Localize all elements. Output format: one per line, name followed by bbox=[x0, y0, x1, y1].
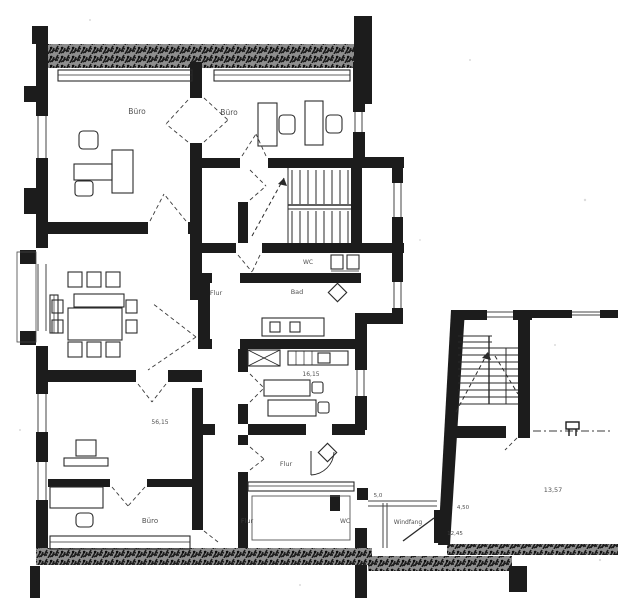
top-wall-band bbox=[46, 44, 362, 68]
label-wc-upper: WC bbox=[303, 259, 313, 266]
bottom-wall-band-main bbox=[36, 548, 372, 565]
furniture-conference-room bbox=[50, 272, 137, 357]
wc-fixture bbox=[331, 255, 343, 269]
label-wc-entrance: WC bbox=[340, 518, 350, 525]
bottom-wall-stub-left bbox=[30, 566, 40, 598]
desk bbox=[112, 150, 133, 193]
conference-table bbox=[68, 308, 122, 340]
radiator bbox=[50, 536, 190, 549]
label-vestibule: Windfang bbox=[394, 519, 423, 526]
label-annex-area: 13,57 bbox=[544, 486, 563, 494]
basin-counter bbox=[262, 318, 324, 336]
column-symbol bbox=[566, 422, 579, 436]
furniture-office-bottom-left bbox=[50, 440, 190, 549]
desk bbox=[268, 400, 316, 416]
bottom-right-pier bbox=[509, 566, 527, 592]
left-pilaster-1 bbox=[24, 86, 36, 102]
bottom-wall-stub-center bbox=[355, 565, 367, 598]
main-staircase bbox=[252, 168, 351, 243]
desk bbox=[264, 380, 310, 396]
label-hall-lower: Flur bbox=[280, 460, 293, 468]
desk bbox=[258, 103, 277, 146]
bay-window-outline bbox=[17, 252, 36, 342]
label-office-bottom-left: Büro bbox=[142, 517, 158, 525]
furniture-wc bbox=[331, 255, 359, 271]
desk bbox=[305, 101, 323, 145]
label-bath: Bad bbox=[291, 288, 304, 296]
label-office-lower-area: 56,15 bbox=[151, 419, 168, 426]
bottom-wall-band-vestibule bbox=[368, 556, 512, 571]
label-dim-entry-width: 4,50 bbox=[457, 505, 470, 511]
bay-pier-bottom bbox=[20, 331, 36, 345]
floor-plan-scan: Büro Büro Flur Bad WC 16,15 56,15 Büro F… bbox=[0, 0, 618, 600]
reference-line bbox=[533, 422, 612, 436]
floor-plan-drawing: Büro Büro Flur Bad WC 16,15 56,15 Büro F… bbox=[0, 0, 618, 600]
desk bbox=[50, 487, 103, 508]
tilted-chair bbox=[328, 283, 346, 301]
bottom-wall-band-annex bbox=[447, 544, 618, 555]
label-corridor-mid: Flur bbox=[210, 289, 223, 297]
label-kitchen-area: 16,15 bbox=[302, 371, 319, 378]
furniture-office-top-left bbox=[58, 70, 192, 196]
annex-staircase bbox=[456, 336, 518, 412]
office-chair bbox=[326, 115, 342, 133]
furniture-lower-hall bbox=[248, 443, 354, 540]
label-office-top-mid: Büro bbox=[220, 108, 238, 117]
label-corridor-lower: Flur bbox=[241, 517, 254, 525]
label-office-top-left: Büro bbox=[128, 107, 146, 116]
wc-fixture bbox=[347, 255, 359, 269]
left-pilaster-2 bbox=[24, 188, 36, 214]
sink bbox=[318, 353, 330, 363]
furniture-kitchen-room bbox=[248, 350, 348, 416]
scan-noise bbox=[19, 19, 601, 586]
furniture-bath bbox=[262, 283, 347, 336]
side-table bbox=[74, 164, 112, 180]
stair-direction-arrow bbox=[252, 178, 284, 236]
serving-table bbox=[74, 294, 124, 307]
office-chair bbox=[79, 131, 98, 149]
label-dim-small: 5,0 bbox=[374, 493, 383, 499]
office-chair bbox=[76, 513, 93, 527]
stair-right-rail-wall bbox=[351, 168, 362, 243]
office-chair bbox=[279, 115, 295, 134]
label-dim-entry-len: 12,45 bbox=[447, 531, 463, 537]
radiator bbox=[248, 482, 354, 491]
